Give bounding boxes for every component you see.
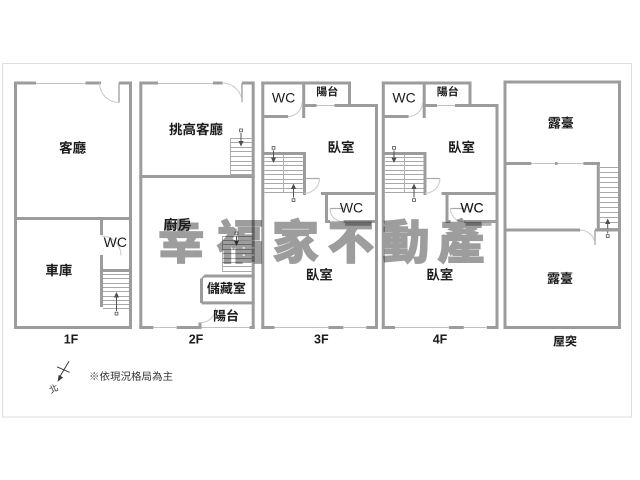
svg-text:WC: WC [392,89,415,105]
svg-text:4F: 4F [433,332,448,346]
svg-text:3F: 3F [314,332,329,346]
svg-text:2F: 2F [189,332,204,346]
svg-text:1F: 1F [64,332,79,346]
svg-text:WC: WC [272,89,295,105]
svg-text:WC: WC [340,200,363,216]
svg-text:WC: WC [104,234,127,250]
svg-text:WC: WC [460,200,483,216]
